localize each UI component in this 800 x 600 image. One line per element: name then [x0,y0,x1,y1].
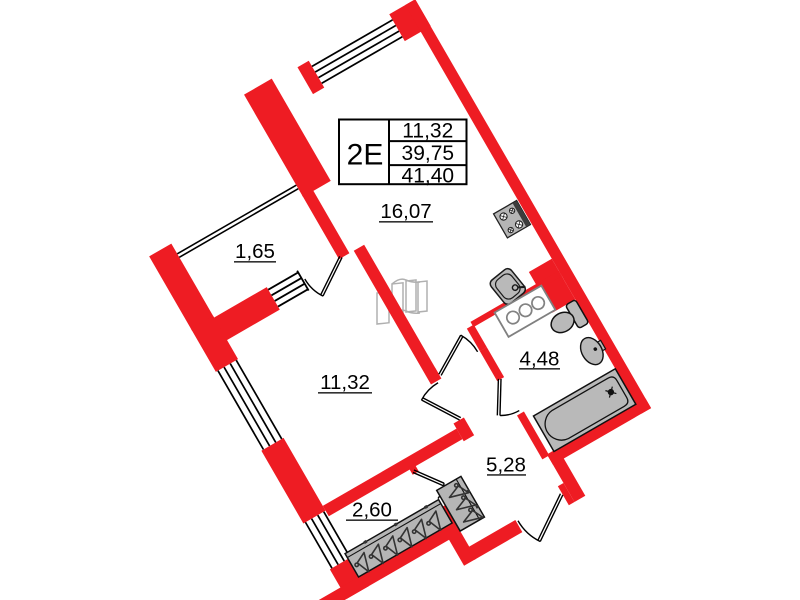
svg-text:2,60: 2,60 [352,499,392,522]
svg-text:5,28: 5,28 [486,453,526,476]
svg-text:39,75: 39,75 [402,142,455,165]
svg-text:11,32: 11,32 [320,371,370,394]
svg-text:4,48: 4,48 [520,347,560,370]
svg-text:2Е: 2Е [347,139,384,172]
svg-text:41,40: 41,40 [402,164,455,187]
svg-text:16,07: 16,07 [380,200,431,223]
svg-text:11,32: 11,32 [402,119,453,142]
svg-text:1,65: 1,65 [235,240,275,263]
